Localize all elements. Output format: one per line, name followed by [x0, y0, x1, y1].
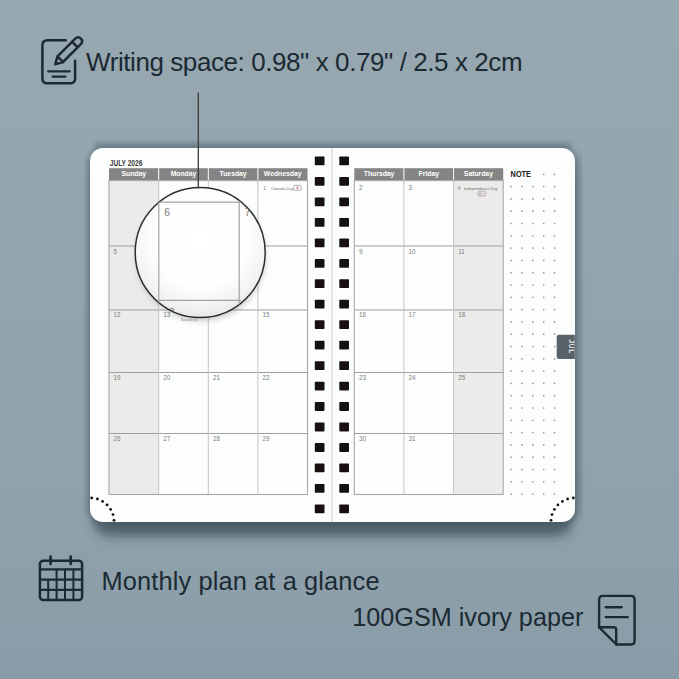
- svg-text:2: 2: [359, 184, 363, 191]
- svg-text:21: 21: [213, 374, 221, 381]
- svg-text:Monthly plan at a glance: Monthly plan at a glance: [102, 567, 380, 595]
- svg-text:Friday: Friday: [419, 170, 440, 178]
- svg-text:Sunday: Sunday: [122, 170, 147, 178]
- svg-text:JULY 2026: JULY 2026: [110, 158, 143, 168]
- svg-text:Saturday: Saturday: [464, 170, 493, 178]
- svg-text:10: 10: [409, 248, 417, 255]
- svg-text:31: 31: [409, 435, 417, 442]
- svg-text:NOTE: NOTE: [511, 169, 532, 179]
- svg-text:Monday: Monday: [171, 170, 197, 178]
- svg-text:17: 17: [409, 311, 417, 318]
- svg-text:11: 11: [458, 248, 465, 255]
- svg-text:18: 18: [458, 311, 466, 318]
- svg-text:20: 20: [163, 374, 171, 381]
- svg-text:JUL: JUL: [568, 340, 575, 354]
- svg-text:16: 16: [359, 311, 367, 318]
- svg-text:Thursday: Thursday: [364, 170, 395, 178]
- svg-text:30: 30: [359, 435, 367, 442]
- svg-text:19: 19: [114, 374, 122, 381]
- svg-text:Wednesday: Wednesday: [264, 170, 302, 178]
- svg-text:1: 1: [263, 185, 266, 191]
- svg-text:9: 9: [359, 248, 363, 255]
- svg-text:6: 6: [164, 207, 170, 218]
- svg-text:28: 28: [213, 435, 221, 442]
- svg-text:Canada Day: Canada Day: [271, 186, 293, 191]
- svg-text:5: 5: [114, 248, 118, 255]
- svg-text:12: 12: [114, 311, 122, 318]
- svg-text:27: 27: [163, 435, 171, 442]
- svg-text:26: 26: [114, 435, 122, 442]
- svg-text:22: 22: [263, 374, 271, 381]
- svg-text:24: 24: [409, 374, 417, 381]
- svg-text:15: 15: [263, 311, 271, 318]
- svg-text:4: 4: [458, 185, 461, 191]
- svg-text:Independence Day: Independence Day: [464, 186, 498, 191]
- svg-text:100GSM ivory paper: 100GSM ivory paper: [352, 603, 583, 631]
- svg-text:3: 3: [409, 184, 413, 191]
- svg-text:Tuesday: Tuesday: [220, 170, 247, 178]
- svg-text:25: 25: [458, 374, 466, 381]
- svg-text:29: 29: [263, 435, 271, 442]
- svg-text:Writing space: 0.98" x 0.79" /: Writing space: 0.98" x 0.79" / 2.5 x 2cm: [86, 47, 522, 77]
- svg-text:23: 23: [359, 374, 367, 381]
